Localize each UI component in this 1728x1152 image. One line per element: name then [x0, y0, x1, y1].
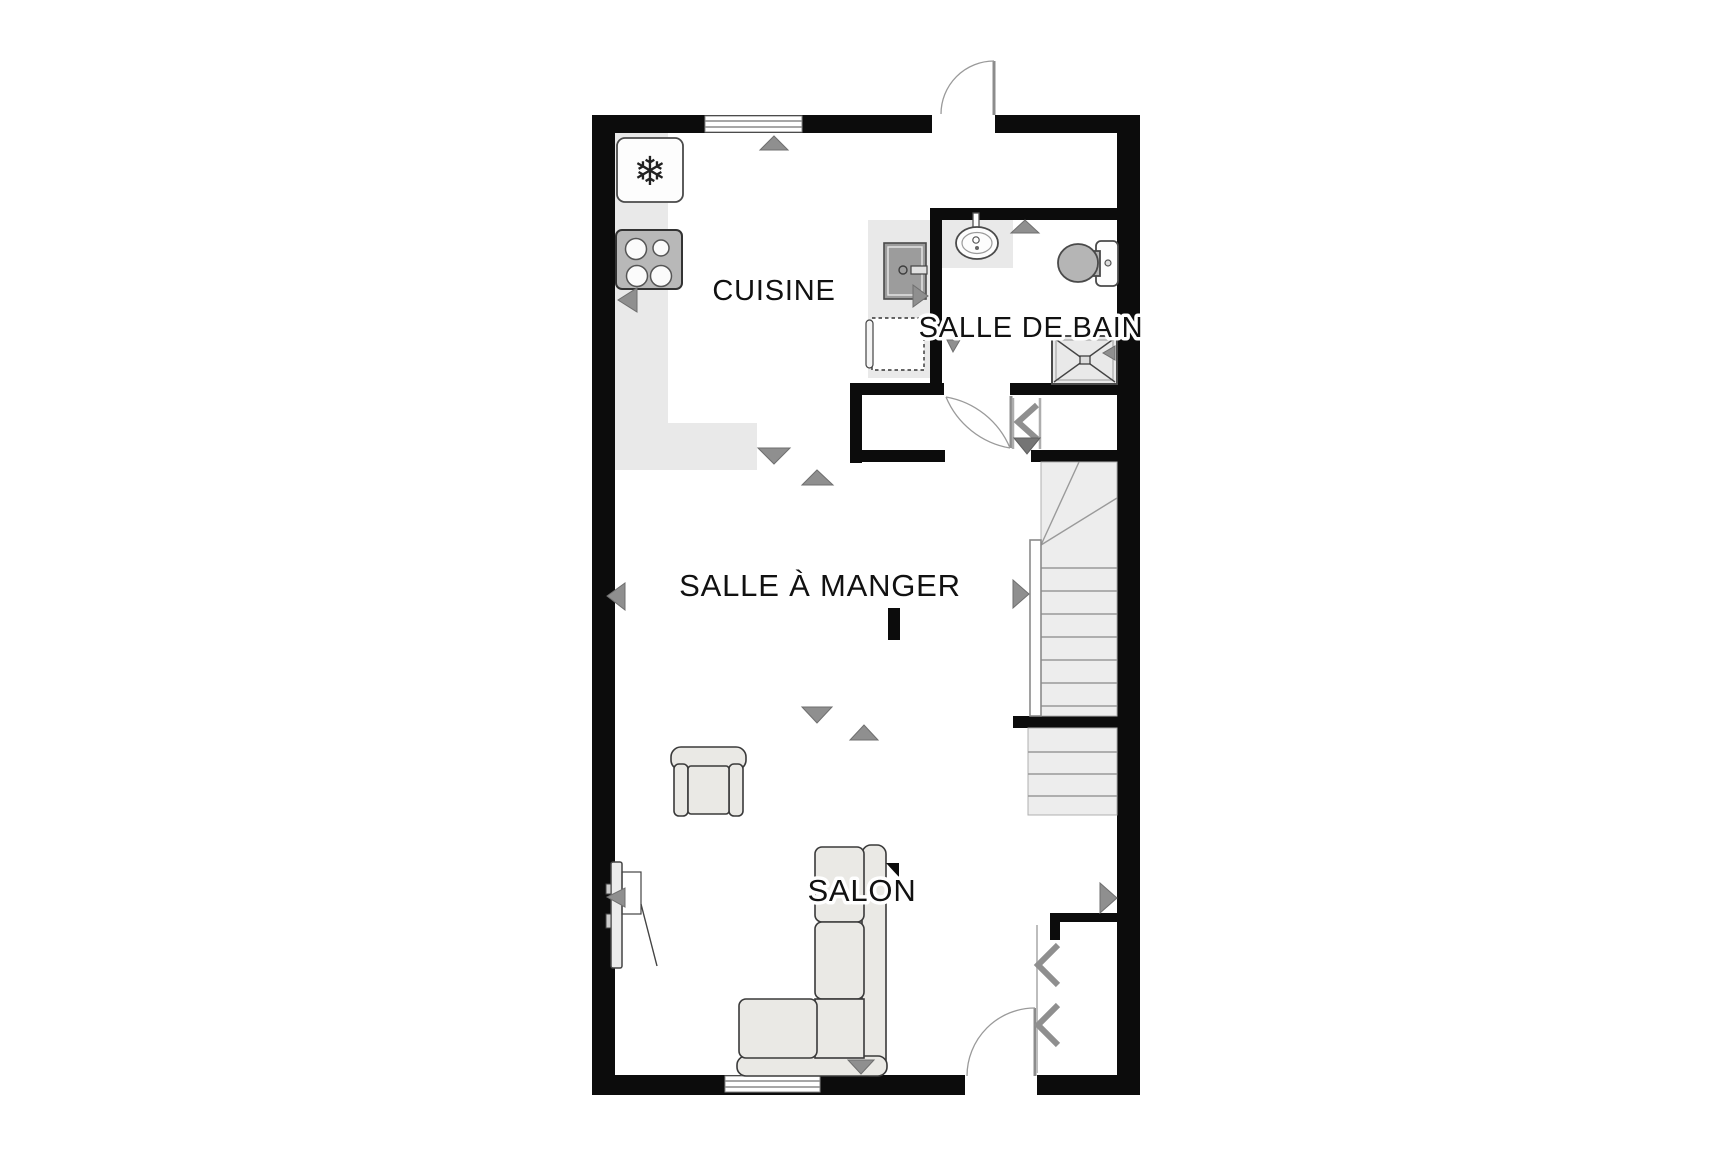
handrail	[1030, 540, 1041, 716]
svg-text:❄: ❄	[633, 149, 667, 195]
top-entry-door	[932, 61, 995, 134]
bottom-window	[725, 1076, 820, 1092]
marker-bar	[888, 608, 900, 640]
stove-icon	[616, 230, 682, 289]
sink-icon	[942, 213, 1013, 268]
room-label-salle-de-bain: SALLE DE BAIN	[919, 312, 1144, 344]
planned-appliance-dashed	[866, 318, 924, 370]
stairs-lower-flight	[1028, 728, 1117, 815]
room-label-salon: SALON	[807, 873, 916, 908]
fridge-icon: ❄	[617, 138, 683, 202]
floor-plan-canvas: ❄	[0, 0, 1728, 1152]
room-label-salle-a-manger: SALLE À MANGER	[679, 568, 961, 603]
armchair	[671, 747, 746, 816]
floor-plan-page: ❄	[0, 0, 1728, 1152]
top-window	[705, 116, 802, 132]
room-label-cuisine: CUISINE	[712, 275, 835, 307]
toilet-icon	[1058, 241, 1118, 286]
staircase	[1028, 462, 1117, 815]
